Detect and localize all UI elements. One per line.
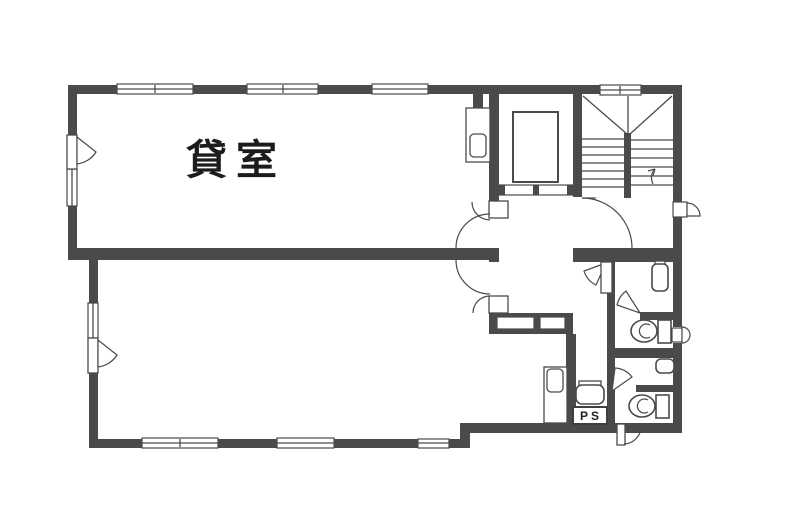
window [600,85,641,95]
elevator-car [513,112,558,182]
service-counter-lower [544,367,567,423]
interior-walls [68,94,682,425]
door-left-upper [67,135,96,169]
elevator [499,112,573,195]
staircase [582,96,673,198]
window [67,169,77,206]
double-door-lower [456,260,508,313]
pipe-space-label: PS [580,409,602,423]
door-staircase [582,198,632,248]
pipe-space: PS [573,407,607,424]
stair-stringer [624,133,631,198]
window [277,438,334,448]
utility-sink [576,381,604,404]
door-wc-bottom [612,368,632,391]
hand-sink [656,359,674,373]
door-corridor [584,262,612,293]
window [142,438,218,448]
double-door-upper [456,201,508,248]
stair-window [673,202,700,217]
toilet-bottom [629,395,669,418]
toilet-middle [631,320,671,343]
wc-window [672,327,690,343]
floor-plan-drawing: 貸室 PS [0,0,787,522]
floor-plan: 貸室 PS [0,0,787,522]
window [418,439,449,448]
window [372,84,428,94]
rental-room-label: 貸室 [186,137,286,183]
door-wc-middle [617,291,640,313]
wash-basin [652,261,668,291]
window [117,84,193,94]
window [247,84,318,94]
door-left-lower [88,338,117,373]
window [88,303,98,338]
service-counter-upper [466,108,490,162]
